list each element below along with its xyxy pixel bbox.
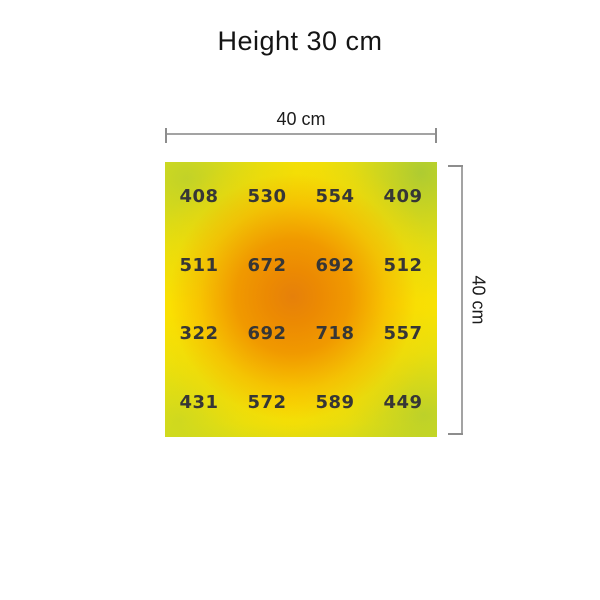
heatmap-cell: 512 bbox=[383, 255, 422, 276]
height-dimension-line: 40 cm bbox=[461, 166, 463, 434]
heatmap-cell: 449 bbox=[383, 392, 422, 413]
heatmap-cell: 557 bbox=[383, 323, 422, 344]
height-dimension-label: 40 cm bbox=[468, 275, 489, 324]
width-dimension-label: 40 cm bbox=[166, 109, 436, 130]
heatmap-cell: 322 bbox=[179, 323, 218, 344]
heatmap-cell: 409 bbox=[383, 186, 422, 207]
chart-title: Height 30 cm bbox=[0, 26, 600, 57]
heatmap-cell: 572 bbox=[247, 392, 286, 413]
heatmap-cell: 554 bbox=[315, 186, 354, 207]
heatmap-cell: 692 bbox=[247, 323, 286, 344]
heatmap-cell: 589 bbox=[315, 392, 354, 413]
width-dimension-line: 40 cm bbox=[166, 133, 436, 135]
heatmap-chart: Height 30 cm 40 cm 408 530 554 409 511 6… bbox=[0, 0, 600, 600]
heatmap-cell: 431 bbox=[179, 392, 218, 413]
heatmap-cell: 408 bbox=[179, 186, 218, 207]
ppfd-heatmap: 408 530 554 409 511 672 692 512 322 692 … bbox=[165, 162, 437, 437]
heatmap-cell: 672 bbox=[247, 255, 286, 276]
heatmap-cell: 511 bbox=[179, 255, 218, 276]
heatmap-cell: 692 bbox=[315, 255, 354, 276]
heatmap-grid: 408 530 554 409 511 672 692 512 322 692 … bbox=[165, 162, 437, 437]
heatmap-cell: 718 bbox=[315, 323, 354, 344]
heatmap-cell: 530 bbox=[247, 186, 286, 207]
